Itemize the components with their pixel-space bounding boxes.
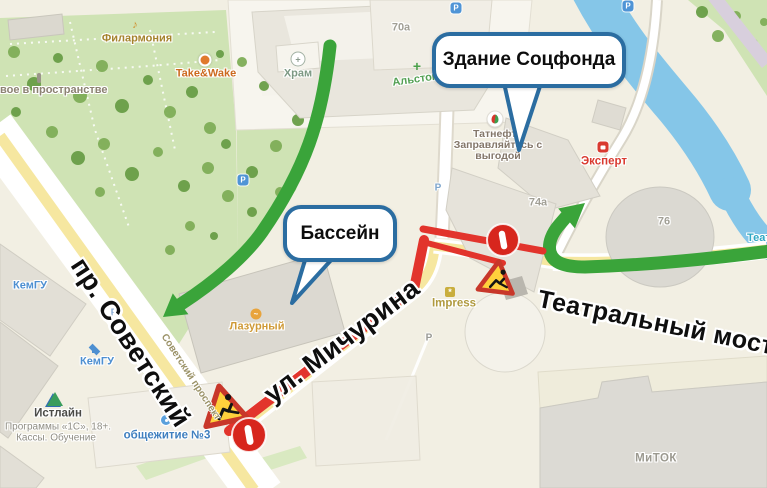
poi-tatneft-sub2: выгодой [475, 150, 520, 162]
parking-icon[interactable]: P [435, 183, 442, 194]
parking-icon[interactable]: P [623, 1, 634, 12]
pool-icon: ~ [251, 309, 262, 320]
poi-istlain-line1: Программы «1С», 18+. [5, 421, 111, 433]
parking-icon[interactable]: P [451, 3, 462, 14]
poi-obshchezhitie[interactable]: общежитие №3 [124, 429, 211, 442]
no-entry-sign-south [232, 418, 266, 452]
poi-takewake[interactable]: Take&Wake [176, 68, 237, 81]
poi-kemgu-upper[interactable]: КемГУ [13, 280, 47, 293]
bld-label-76: 76 [658, 216, 670, 229]
church-icon: + [291, 52, 306, 67]
parking-icon[interactable]: P [426, 333, 433, 344]
bld-label-70a: 70a [392, 22, 410, 35]
poi-kemgu-lower[interactable]: КемГУ [80, 356, 114, 369]
bld-label-74a: 74a [529, 197, 547, 210]
graduation-cap-icon [88, 344, 102, 354]
poi-istlain-line2: Кассы. Обучение [16, 432, 96, 444]
takewake-icon [199, 54, 212, 67]
istlain-logo-icon [47, 392, 63, 406]
expert-shop-icon [598, 142, 609, 153]
map-canvas[interactable]: ♪ Филармония Take&Wake вое в пространств… [0, 0, 767, 488]
poi-teat[interactable]: Теат [747, 232, 767, 245]
philharmonic-icon: ♪ [132, 19, 138, 31]
monument-icon [37, 73, 41, 83]
poi-impress[interactable]: Impress [432, 297, 476, 310]
poi-hram[interactable]: Храм [284, 68, 312, 81]
poi-lazurny[interactable]: Лазурный [230, 321, 285, 334]
callout-socfond: Здание Соцфонда [432, 32, 626, 88]
poi-istlain[interactable]: Истлайн [34, 407, 82, 420]
pharmacy-cross-icon: + [413, 58, 421, 74]
callout-bassein: Бассейн [283, 205, 397, 262]
poi-filarmonia[interactable]: Филармония [102, 33, 172, 46]
poi-expert[interactable]: Эксперт [581, 155, 627, 168]
parking-icon[interactable]: P [238, 175, 249, 186]
bld-label-mitok: МиТОК [635, 452, 677, 465]
tatneft-logo-icon [487, 111, 504, 128]
no-entry-sign-north [487, 224, 519, 256]
impress-icon: * [445, 287, 455, 297]
poi-prostranstvo[interactable]: вое в пространстве [0, 84, 108, 97]
